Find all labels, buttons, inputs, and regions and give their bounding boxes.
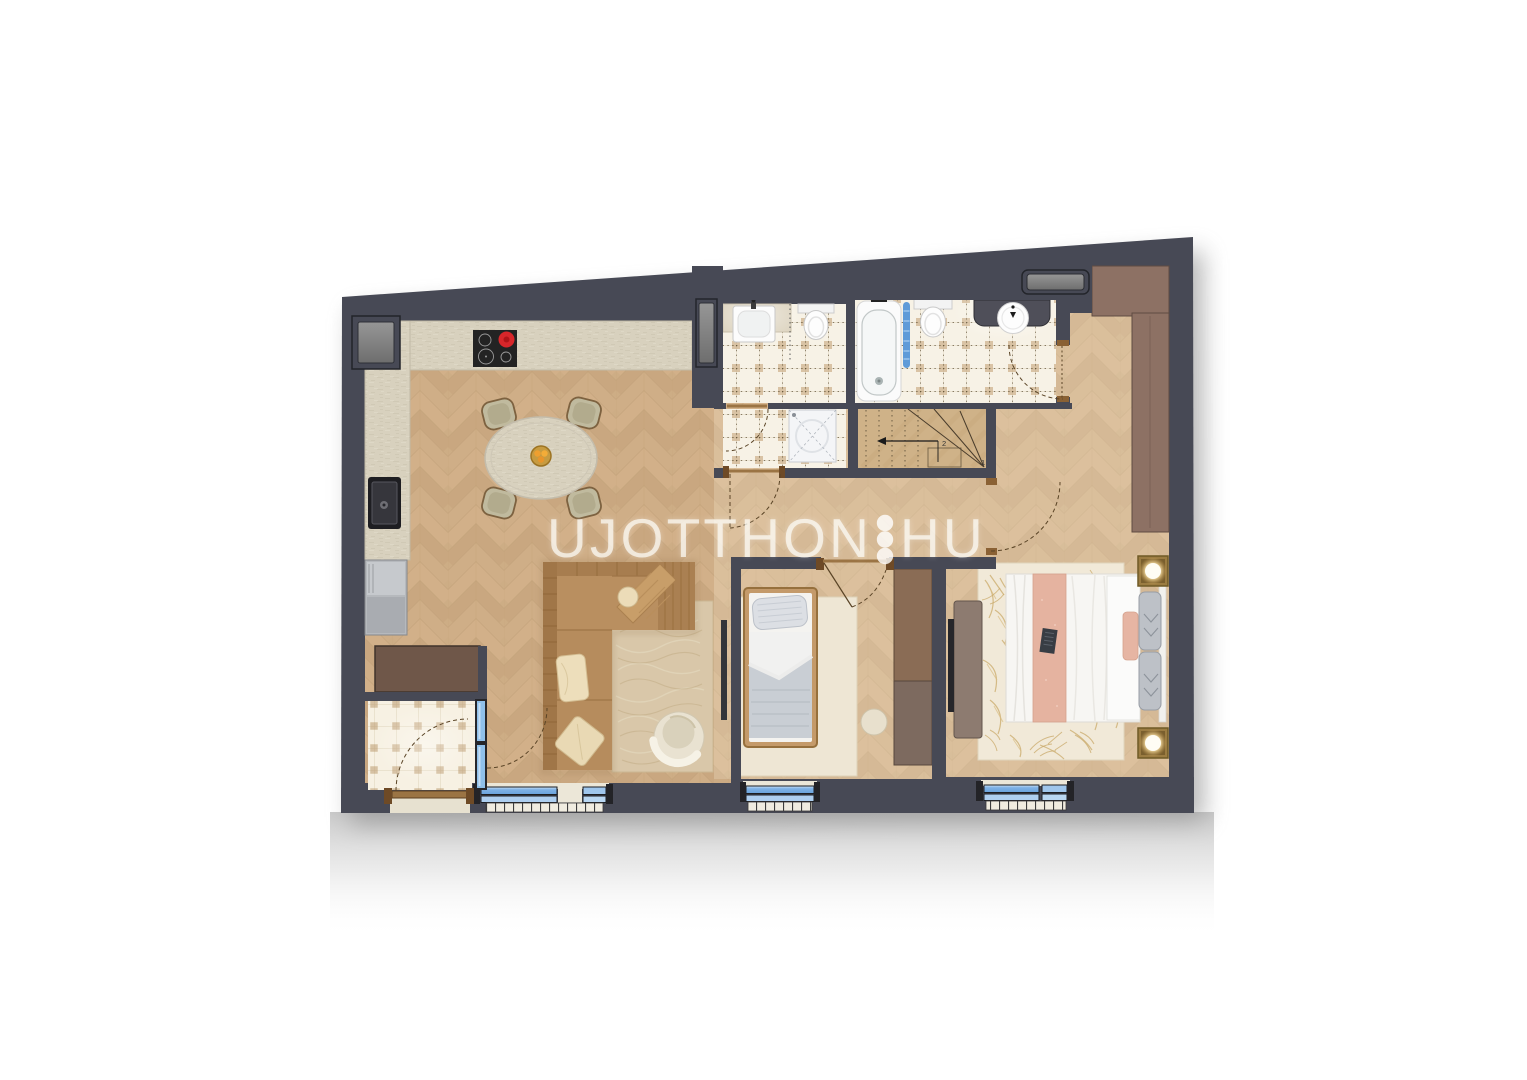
svg-text:2: 2 — [942, 439, 946, 448]
svg-text:1: 1 — [981, 458, 985, 467]
svg-text:HU: HU — [900, 507, 986, 569]
svg-text:UJOTTHON: UJOTTHON — [547, 507, 872, 569]
